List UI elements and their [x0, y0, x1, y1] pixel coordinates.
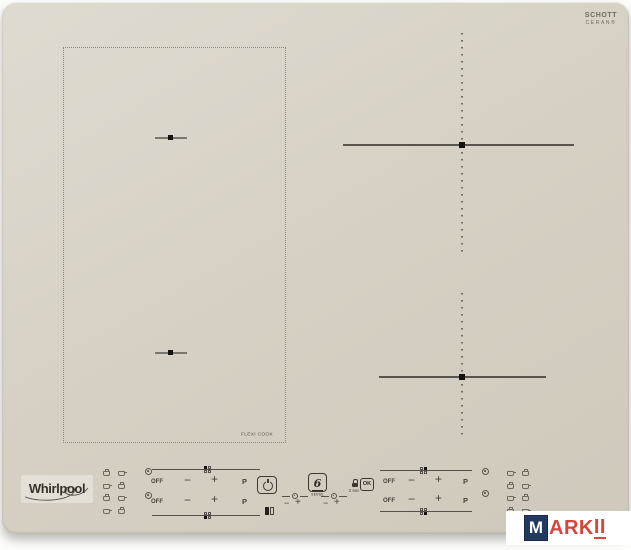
booster-button[interactable]: P — [242, 498, 247, 506]
watermark-m-box: M — [524, 515, 548, 541]
power-button[interactable] — [257, 476, 277, 494]
power-plus-button[interactable]: + — [211, 473, 218, 485]
cook-function-icon[interactable] — [102, 469, 111, 476]
cook-function-icon[interactable] — [102, 494, 111, 501]
power-plus-button[interactable]: + — [211, 493, 218, 505]
cook-function-icon[interactable] — [117, 507, 126, 514]
whirlpool-swirl-icon — [21, 475, 93, 503]
cook-function-icon[interactable] — [521, 482, 530, 489]
zone-off-button[interactable]: OFF — [383, 498, 395, 504]
zone-indicator-icon — [482, 490, 489, 497]
zone-off-button[interactable]: OFF — [151, 479, 163, 485]
zone-center-mark — [459, 142, 465, 148]
power-plus-button[interactable]: + — [435, 473, 442, 485]
zone-left-top-controls: OFF − + P — [150, 462, 262, 492]
booster-button[interactable]: P — [463, 497, 468, 505]
cook-function-icon[interactable] — [506, 482, 515, 489]
six-sense-button[interactable]: 6 SENSE — [308, 473, 327, 492]
pan-position-marker — [155, 352, 187, 354]
cook-function-icon-grid-right — [506, 469, 530, 514]
zone-left-bottom-controls: OFF − + P — [150, 492, 262, 522]
power-minus-button[interactable]: − — [408, 493, 415, 505]
cook-function-icon[interactable] — [117, 482, 126, 489]
induction-hob-surface: SCHOTT CERAN® FLEXI COOK Whirlpool — [2, 2, 629, 534]
zone-off-button[interactable]: OFF — [151, 499, 163, 505]
cook-function-icon[interactable] — [506, 494, 515, 501]
timer-dash — [300, 496, 308, 497]
cook-function-icon-grid-left — [102, 469, 126, 514]
zone-pairing-mark — [420, 508, 427, 515]
timer-plus-button[interactable]: + — [334, 498, 340, 508]
zone-off-button[interactable]: OFF — [383, 479, 395, 485]
lock-icon — [352, 479, 358, 487]
schott-logo-text: SCHOTT — [580, 12, 622, 19]
zone-right-top-controls: OFF − + P — [378, 462, 474, 492]
watermark-text: ARK — [549, 517, 594, 540]
zone-indicator-icon — [482, 468, 489, 475]
power-icon-bar — [266, 479, 270, 484]
cook-function-icon[interactable] — [521, 469, 530, 476]
schott-ceran-logo: SCHOTT CERAN® — [580, 12, 622, 26]
timer-plus-button[interactable]: + — [295, 498, 301, 508]
timer-minus-button[interactable]: − — [323, 499, 328, 508]
pan-position-marker — [155, 137, 187, 139]
zone-cross-dots — [461, 293, 463, 435]
ok-button[interactable]: OK — [360, 478, 374, 491]
ceran-logo-text: CERAN® — [580, 20, 622, 26]
power-minus-button[interactable]: − — [184, 494, 191, 506]
zone-pairing-mark — [204, 512, 211, 519]
markii-watermark: M ARK II — [506, 511, 631, 545]
display-segment-icon — [265, 507, 274, 515]
flexi-cook-label: FLEXI COOK — [241, 432, 273, 437]
timer-left: − + — [282, 491, 310, 508]
booster-button[interactable]: P — [463, 478, 468, 486]
booster-button[interactable]: P — [242, 478, 247, 486]
timer-dash — [282, 496, 290, 497]
cook-function-icon[interactable] — [506, 469, 515, 476]
cook-function-icon[interactable] — [102, 482, 111, 489]
zone-pairing-mark — [420, 467, 427, 474]
cook-function-icon[interactable] — [117, 494, 126, 501]
flexi-cook-zone: FLEXI COOK — [63, 47, 286, 443]
watermark-text-underlined: II — [594, 517, 606, 539]
cook-function-icon[interactable] — [117, 469, 126, 476]
timer-dash — [339, 496, 347, 497]
zone-right-bottom-controls: OFF − + P — [378, 490, 474, 520]
timer-dash — [321, 496, 329, 497]
power-minus-button[interactable]: − — [184, 474, 191, 486]
cook-function-icon[interactable] — [521, 494, 530, 501]
zone-center-mark — [459, 374, 465, 380]
cook-function-icon[interactable] — [102, 507, 111, 514]
power-plus-button[interactable]: + — [435, 492, 442, 504]
product-photo: SCHOTT CERAN® FLEXI COOK Whirlpool — [0, 0, 631, 550]
timer-minus-button[interactable]: − — [284, 499, 289, 508]
power-minus-button[interactable]: − — [408, 474, 415, 486]
whirlpool-logo: Whirlpool — [21, 475, 93, 503]
